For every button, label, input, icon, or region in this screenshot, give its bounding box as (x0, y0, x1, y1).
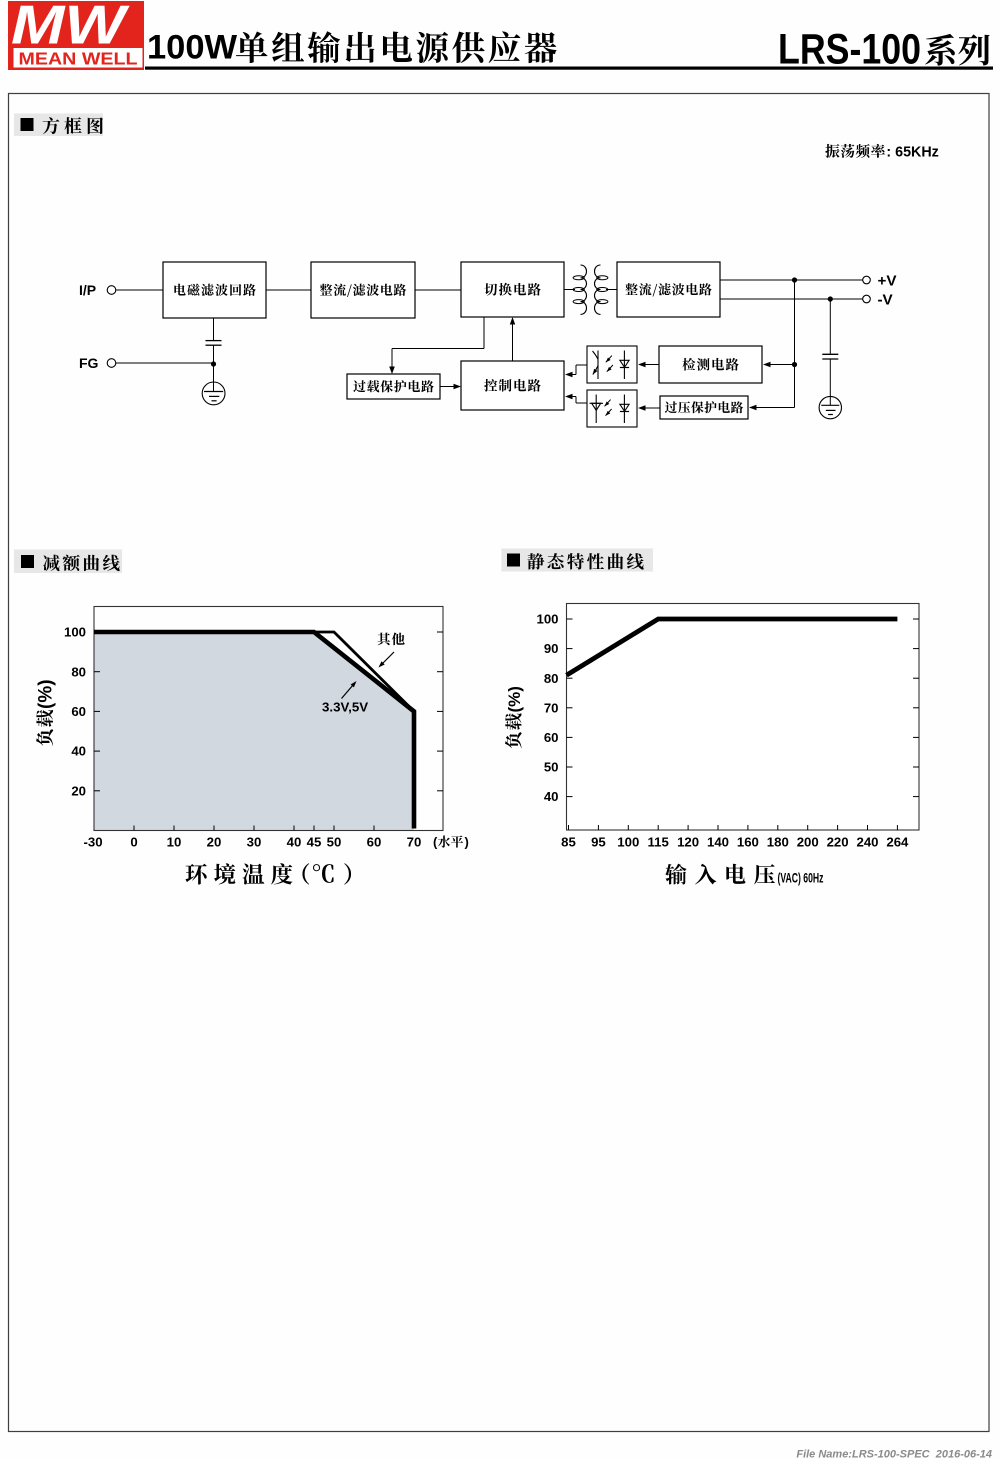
svg-text:50: 50 (327, 835, 342, 850)
svg-text:70: 70 (544, 700, 559, 715)
svg-text:200: 200 (797, 835, 819, 850)
svg-text:100: 100 (617, 835, 639, 850)
svg-text:MEAN WELL: MEAN WELL (19, 49, 138, 69)
svg-text:115: 115 (648, 835, 669, 850)
svg-text:95: 95 (591, 835, 606, 850)
svg-text:80: 80 (71, 664, 86, 679)
svg-text:160: 160 (737, 835, 759, 850)
svg-text:30: 30 (247, 835, 262, 850)
svg-text:): ) (465, 835, 469, 850)
svg-text:264: 264 (886, 835, 909, 850)
svg-text:40: 40 (287, 835, 302, 850)
svg-text:60: 60 (544, 730, 559, 745)
svg-text:60: 60 (367, 835, 382, 850)
svg-text:FG: FG (79, 355, 99, 371)
svg-text:0: 0 (130, 835, 137, 850)
svg-text:+V: +V (878, 273, 898, 290)
svg-text:10: 10 (167, 835, 182, 850)
svg-text:3.3V,5V: 3.3V,5V (322, 700, 368, 715)
svg-text:220: 220 (827, 835, 849, 850)
svg-text:File Name:LRS-100-SPEC 2016-0: File Name:LRS-100-SPEC 2016-06-14 (796, 1449, 992, 1459)
svg-text:90: 90 (544, 641, 559, 656)
svg-text:70: 70 (407, 835, 422, 850)
svg-text:140: 140 (707, 835, 729, 850)
svg-text:100: 100 (64, 625, 86, 640)
svg-text:40: 40 (71, 744, 86, 759)
svg-text:(%): (%) (505, 686, 524, 712)
svg-text:85: 85 (561, 835, 576, 850)
svg-text:20: 20 (207, 835, 222, 850)
svg-text:-V: -V (878, 292, 894, 309)
svg-text:50: 50 (544, 760, 559, 775)
svg-text:: 65KHz: : 65KHz (886, 145, 938, 161)
svg-text:240: 240 (856, 835, 878, 850)
svg-text:LRS-100: LRS-100 (778, 26, 921, 74)
svg-text:I/P: I/P (79, 282, 96, 298)
svg-text:80: 80 (544, 671, 559, 686)
svg-text:(VAC) 60Hz: (VAC) 60Hz (778, 871, 824, 886)
svg-text:45: 45 (307, 835, 322, 850)
svg-text:-30: -30 (83, 835, 102, 850)
svg-text:20: 20 (71, 783, 86, 798)
svg-text:120: 120 (677, 835, 699, 850)
svg-text:MW: MW (11, 0, 130, 56)
svg-text:180: 180 (767, 835, 789, 850)
svg-text:40: 40 (544, 789, 559, 804)
svg-text:(: ( (433, 835, 438, 850)
svg-text:(%): (%) (36, 679, 57, 709)
svg-text:60: 60 (71, 704, 86, 719)
svg-text:100W: 100W (147, 29, 238, 67)
svg-text:100: 100 (536, 612, 558, 627)
